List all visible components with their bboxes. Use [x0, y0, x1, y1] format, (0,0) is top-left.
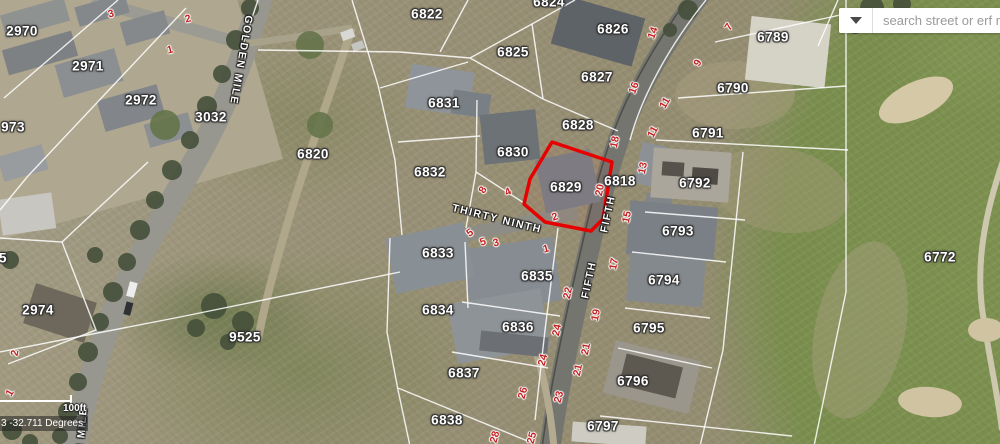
caret-down-icon: [850, 17, 862, 24]
search-box: [839, 8, 1000, 33]
golf-sand-bunkers: [675, 61, 1000, 427]
scale-bar: [0, 395, 71, 407]
map[interactable]: 2970297129729733032297459525682068226824…: [0, 0, 1000, 444]
scale-label: 100ft: [63, 403, 86, 414]
search-input[interactable]: [873, 8, 1000, 33]
map-overlay-canvas: [0, 0, 1000, 444]
coordinates-readout: 3 -32.711 Degrees: [0, 416, 88, 431]
search-dropdown-button[interactable]: [839, 8, 873, 33]
